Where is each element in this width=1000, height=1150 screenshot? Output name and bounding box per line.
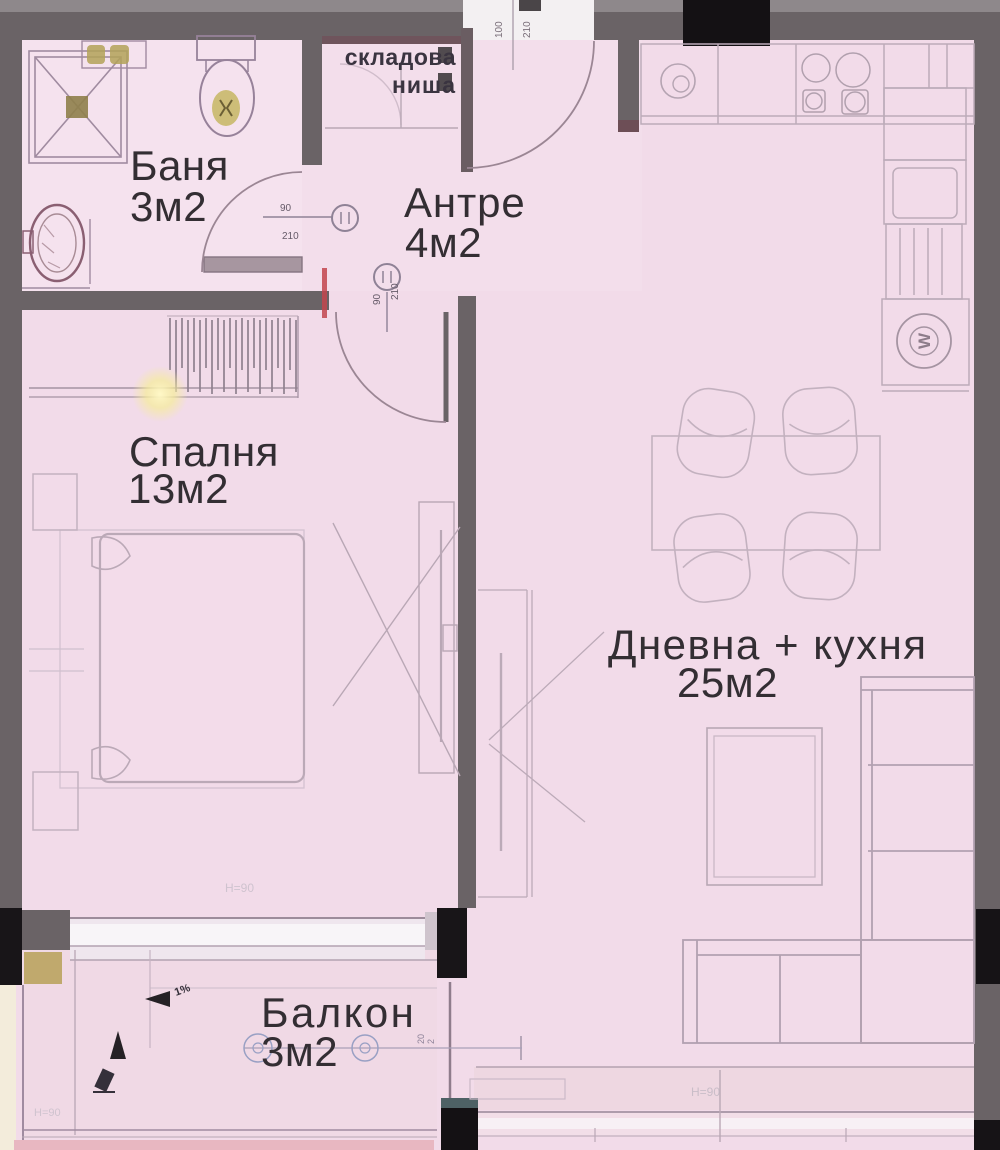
svg-text:H=90: H=90 bbox=[34, 1107, 61, 1119]
svg-text:4м2: 4м2 bbox=[405, 219, 482, 266]
svg-text:ниша: ниша bbox=[392, 72, 456, 98]
svg-text:H=90: H=90 bbox=[225, 881, 254, 895]
svg-text:90: 90 bbox=[280, 203, 292, 214]
svg-text:100: 100 bbox=[494, 21, 505, 38]
svg-text:Баня: Баня bbox=[130, 142, 229, 189]
svg-text:20: 20 bbox=[416, 1034, 426, 1044]
svg-text:3м2: 3м2 bbox=[261, 1028, 338, 1075]
svg-text:210: 210 bbox=[522, 21, 533, 38]
svg-text:W: W bbox=[915, 332, 934, 349]
svg-text:складова: складова bbox=[345, 44, 456, 70]
svg-text:90: 90 bbox=[372, 293, 383, 305]
svg-text:25м2: 25м2 bbox=[677, 659, 778, 706]
svg-text:3м2: 3м2 bbox=[130, 183, 207, 230]
svg-text:13м2: 13м2 bbox=[128, 465, 229, 512]
svg-text:2: 2 bbox=[426, 1039, 436, 1044]
svg-text:210: 210 bbox=[282, 231, 299, 242]
svg-text:H=90: H=90 bbox=[691, 1085, 720, 1099]
svg-text:210: 210 bbox=[390, 283, 401, 300]
